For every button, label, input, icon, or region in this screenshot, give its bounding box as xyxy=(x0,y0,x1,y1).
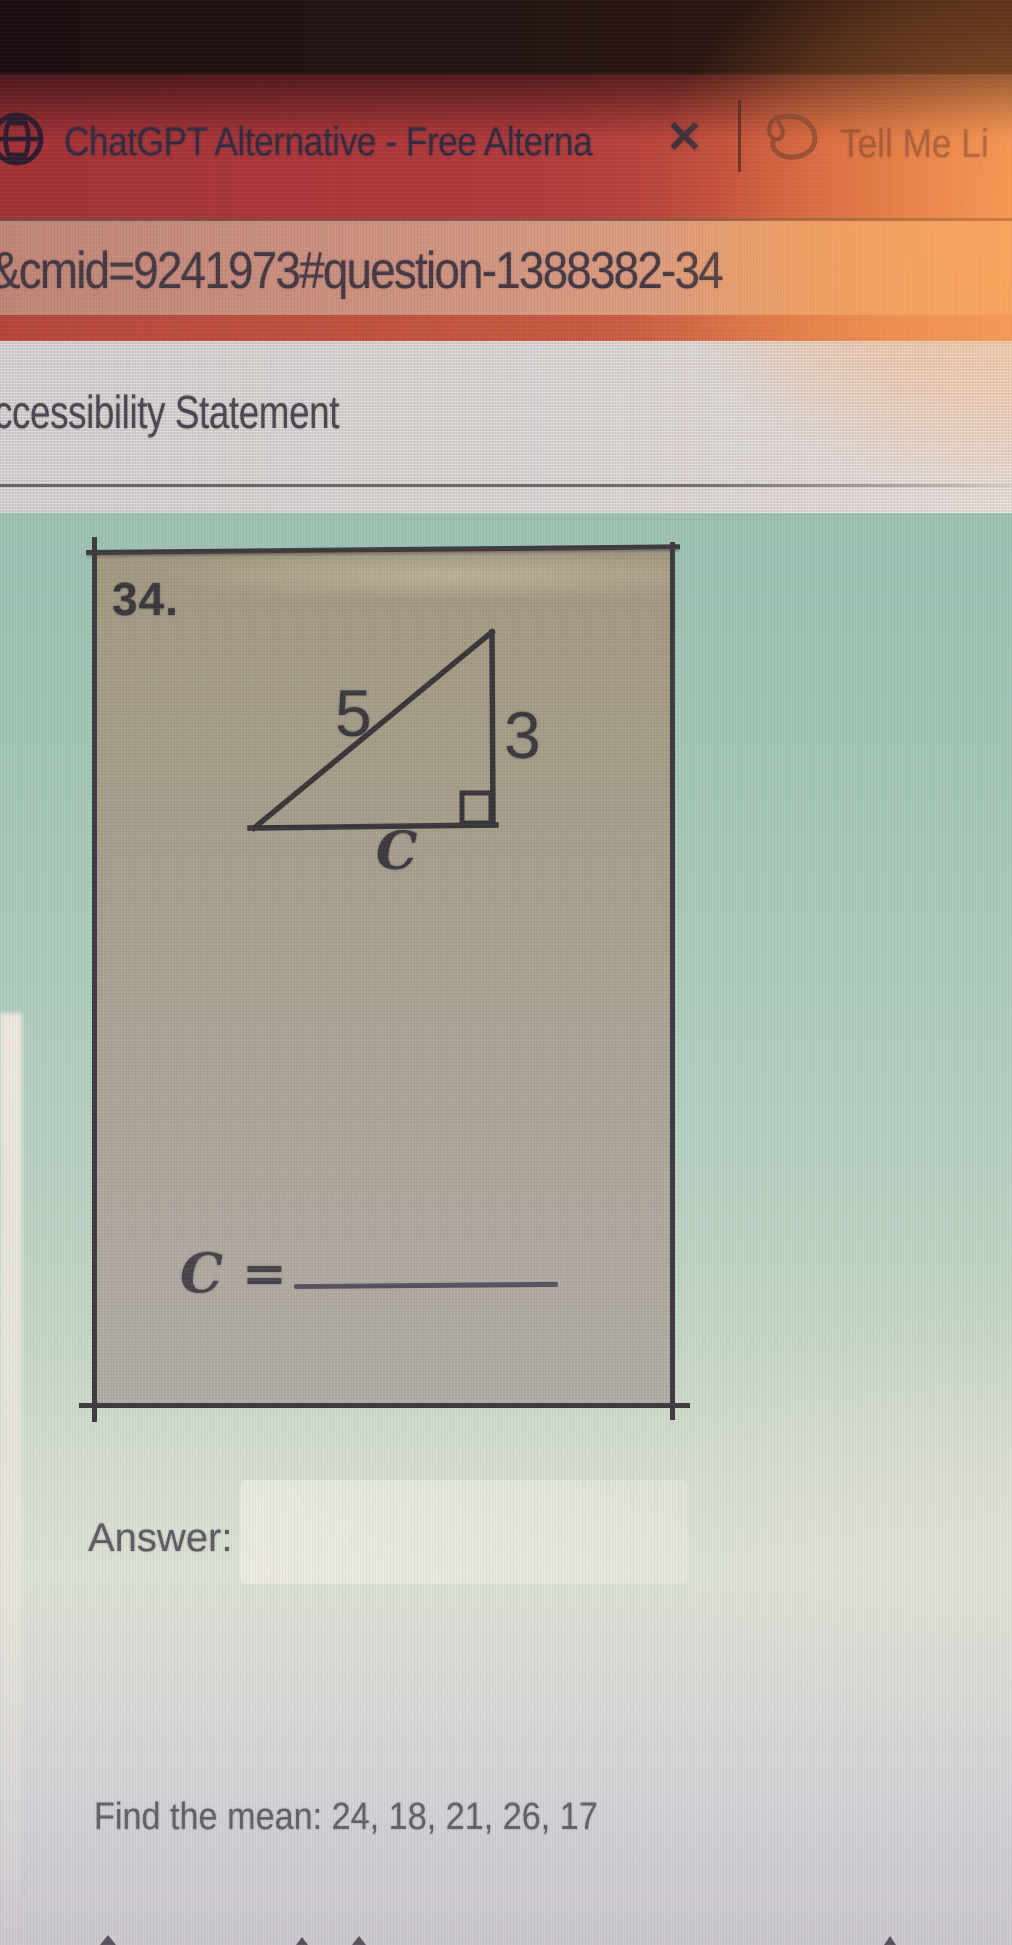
fill-in-prompt: C = xyxy=(180,1246,287,1300)
globe-favicon-icon xyxy=(0,110,46,168)
fill-in-blank-line xyxy=(294,1282,558,1289)
browser-tab-bar: ChatGPT Alternative - Free Alterna ✕ Tel… xyxy=(0,74,1012,221)
card-border-bottom xyxy=(79,1403,690,1408)
disney-d-icon xyxy=(764,110,822,164)
tab-separator xyxy=(738,100,741,172)
header-divider-line xyxy=(0,484,1012,487)
question-card: 34. 5 3 C C = xyxy=(92,550,675,1408)
right-angle-marker xyxy=(462,793,491,823)
screen-bezel-top xyxy=(0,0,1012,74)
active-tab-title[interactable]: ChatGPT Alternative - Free Alterna xyxy=(64,120,592,165)
second-tab-title[interactable]: Tell Me Li xyxy=(840,122,991,167)
next-question-text: Find the mean: 24, 18, 21, 26, 17 xyxy=(94,1798,598,1836)
photographed-browser-screen: ChatGPT Alternative - Free Alterna ✕ Tel… xyxy=(0,0,1012,1945)
hypotenuse-label: 5 xyxy=(335,680,372,746)
answer-input[interactable] xyxy=(240,1480,688,1584)
screen-edge-glare xyxy=(0,1013,22,1945)
header-red-strip xyxy=(0,315,1012,343)
base-side-label: C xyxy=(376,826,417,878)
question-number: 34. xyxy=(112,576,179,622)
tab-close-icon[interactable]: ✕ xyxy=(666,112,703,163)
vertical-side-label: 3 xyxy=(504,702,541,768)
card-border-left xyxy=(92,537,97,1422)
page-header-band: ccessibility Statement xyxy=(0,341,1012,513)
answer-label: Answer: xyxy=(88,1518,233,1558)
accessibility-statement-link[interactable]: ccessibility Statement xyxy=(0,385,339,439)
url-bar[interactable]: &cmid=9241973#question-1388382-34 xyxy=(0,218,1012,318)
right-triangle-figure xyxy=(240,620,510,842)
url-text[interactable]: &cmid=9241973#question-1388382-34 xyxy=(0,241,722,301)
card-border-right xyxy=(670,542,675,1420)
